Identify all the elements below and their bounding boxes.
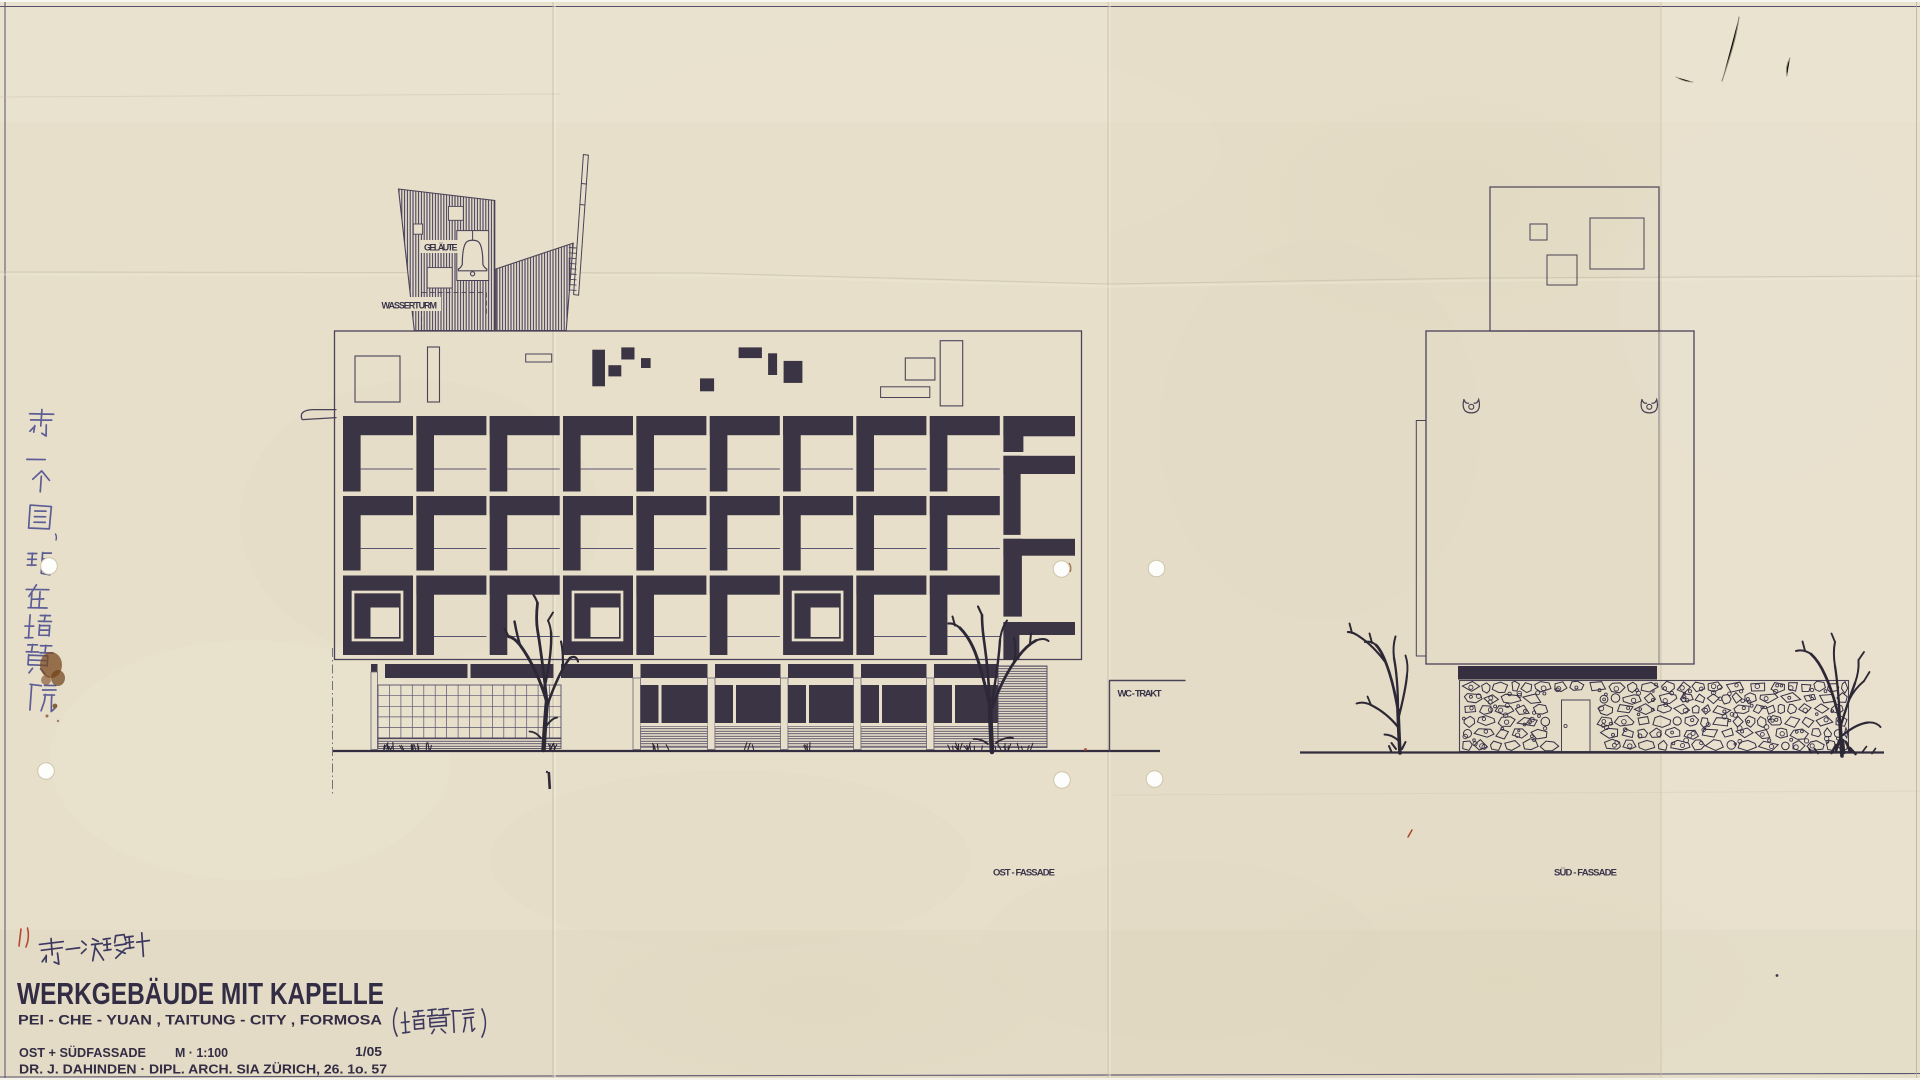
svg-text:PEI - CHE - YUAN , TAITUNG - C: PEI - CHE - YUAN , TAITUNG - CITY , FORM… (18, 1013, 382, 1028)
svg-text:WERKGEBÄUDE MIT KAPELLE: WERKGEBÄUDE MIT KAPELLE (17, 976, 384, 1011)
svg-text:SÜD - FASSADE: SÜD - FASSADE (1554, 868, 1618, 879)
svg-text:WC - TRAKT: WC - TRAKT (1118, 689, 1163, 700)
svg-text:OST - FASSADE: OST - FASSADE (993, 868, 1056, 879)
svg-text:M · 1:100: M · 1:100 (175, 1046, 228, 1060)
svg-text:DR. J. DAHINDEN · DIPL. ARCH: DR. J. DAHINDEN · DIPL. ARCH. SIA ZÜRICH… (19, 1062, 387, 1077)
svg-text:WASSERTURM: WASSERTURM (382, 301, 438, 311)
svg-text:GELÄUTE: GELÄUTE (424, 243, 458, 253)
svg-text:OST + SÜDFASSADE: OST + SÜDFASSADE (19, 1045, 146, 1060)
svg-text:1/05: 1/05 (355, 1044, 382, 1059)
